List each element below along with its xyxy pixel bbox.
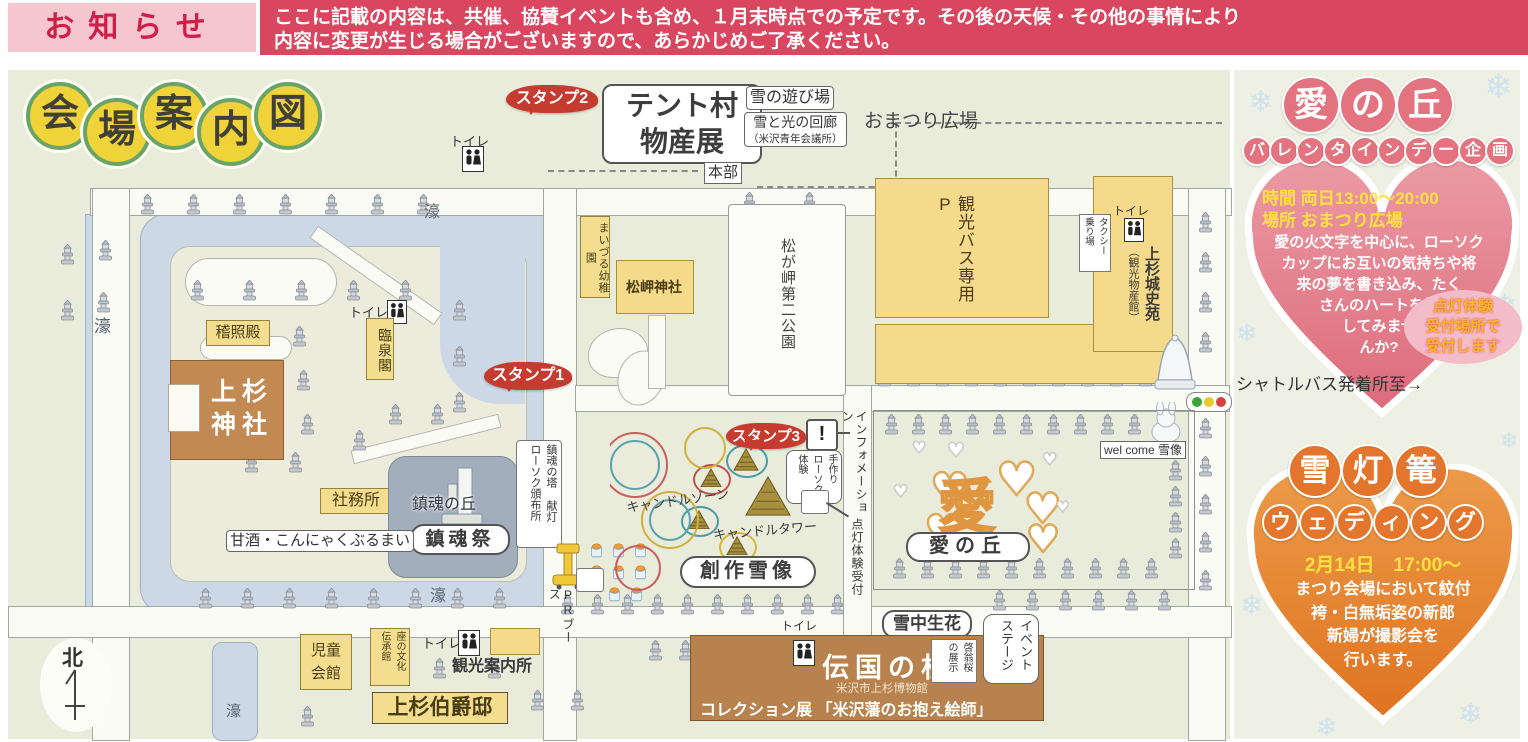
shamusho-label: 社務所 [320,488,392,514]
chinkon-hill-label: 鎮魂の丘 [412,490,476,514]
toilet-label: トイレ [1113,202,1149,219]
circle-char: タ [1323,136,1353,166]
pr-booth-box [576,568,604,592]
toilet-label: トイレ [781,617,817,634]
toilet-icon [1124,218,1144,242]
tent-line2: 物産展 [604,124,760,160]
information-label: インフォメーション [847,410,867,526]
snow-light-corridor-label: 雪と光の回廊 （米沢青年会議所） [744,112,847,147]
ai-place-label: 場所 おまつり広場 [1262,206,1403,231]
wedding-date-label: 2月14日 17:00～ [1258,550,1508,577]
circle-char: イ [1350,136,1380,166]
moat-south [212,642,258,741]
wedding-body-text: まつり会場において紋付 袴・白無垢姿の新郎 新婦が撮影会を 行います。 [1258,578,1508,672]
rinsenkaku-label: 臨泉閣 [366,318,394,380]
taxi-col2: 乗り場 [1081,217,1095,269]
chinkon-tower-col1: 鎮魂の塔 献灯 [543,444,559,544]
bus-parking-label: 観光バス専用P [950,195,974,311]
circle-char: 丘 [1396,76,1454,134]
lighting-badge-text: 点灯体験 受付場所で 受付します [1410,297,1516,357]
dashed-boundary [548,170,698,172]
tent-line1: テント村 [604,88,760,124]
za-col1: 座の文化 [392,631,407,683]
information-mark: ! [806,419,838,451]
snow-sculpture-label: 創作雪像 [680,556,816,588]
tent-village-label: テント村 物産展 [602,84,762,164]
circle-char: 雪 [1288,444,1342,498]
circle-char: グ [1447,504,1484,541]
notice-line2: 内容に変更が生じる場合がございますので、あらかじめご了承ください。 [274,30,1528,54]
hakushaku-label: 上杉伯爵邸 [372,692,508,724]
chinkon-tower-label: 鎮魂の塔 献灯 ローソク頒布所 [516,440,562,548]
stage-col1: イベント [1016,619,1035,679]
road-top [90,188,1232,216]
keio-col1: 啓翁桜 [959,642,974,680]
ai-no-oka-area [873,410,1195,590]
moat-label: 濠 [430,582,446,606]
ai-no-oka-label: 愛の丘 [906,532,1030,562]
welcome-statue-label: wel come 雪像 [1100,441,1186,459]
keio-sakura-label: 啓翁桜 の展示 [931,639,977,683]
circle-char: デ [1336,504,1373,541]
north-compass: 北 [40,638,112,732]
circle-char: 灯 [1341,444,1395,498]
stamp3-badge: スタンプ3 [726,423,806,449]
event-stage-label: イベント ステージ [983,614,1039,684]
kairo-line2: （米沢青年会議所） [748,132,843,146]
za-col2: 伝承館 [377,631,392,683]
park-label: 松が岬第二公園 [770,238,796,378]
circle-char: ィ [1373,504,1410,541]
shrine-name-line1: 上杉 [206,376,278,409]
circle-char: 企 [1458,136,1488,166]
jido-kaikan-label: 児童 会館 [300,634,352,690]
headquarters-label: 本部 [704,162,742,184]
collection-label: コレクション展 「米沢藩のお抱え絵師」 [700,696,992,720]
amazake-label: 甘酒・こんにゃくぶるまい [226,530,414,552]
big-snow-lantern-icon [1152,334,1198,396]
pr-booth-label: PRブース [556,588,574,650]
circle-char: ウ [1262,504,1299,541]
lighting-reception-label: 点灯体験受付 [843,518,863,610]
maizuru-kindergarten-label: まいづる幼稚園 [580,216,610,298]
road-bottom [8,606,1232,638]
moat-label: 濠 [94,312,111,337]
title-char: 図 [254,82,322,150]
tourist-info-building [490,628,540,655]
circle-char: レ [1269,136,1299,166]
snow-playground-label: 雪の遊び場 [746,86,834,110]
shuttle-bus-label: シャトルバス発着所至→ [1236,370,1423,395]
omatsuri-plaza-label: おまつり広場 [864,106,978,133]
notice-banner: ここに記載の内容は、共催、協賛イベントも含め、１月末時点での予定です。その後の天… [260,0,1528,55]
leader-line [836,432,850,434]
stamp1-badge: スタンプ1 [484,362,572,390]
shrine-name-line2: 神社 [206,409,278,442]
reception-box [801,490,829,514]
shrine-notch [168,384,200,432]
stage-col2: ステージ [997,619,1016,679]
denkoku-sublabel: 米沢市上杉博物館 [836,680,928,696]
uesugi-shrine-label: 上杉 神社 [206,376,278,441]
circle-char: ン [1410,504,1447,541]
notice-label: お知らせ [8,3,256,52]
circle-char: ン [1377,136,1407,166]
island-path [185,258,337,306]
toilet-label: トイレ [422,633,461,652]
shrine-approach [648,315,666,389]
chinkon-festival-label: 鎮魂祭 [410,524,510,555]
keishoden-label: 稽照殿 [206,320,270,346]
circle-char: デ [1404,136,1434,166]
matsugasaki-shrine-label: 松岬神社 [620,277,688,297]
page-title: 会場案内図 [26,82,326,166]
traffic-light-icon [1186,392,1232,412]
tourist-info-label: 観光案内所 [452,652,532,676]
circle-char: の [1339,76,1397,134]
circle-char: ー [1431,136,1461,166]
circle-char: バ [1242,136,1272,166]
toilet-icon [462,146,484,172]
kairo-line1: 雪と光の回廊 [748,113,843,132]
keio-col2: の展示 [944,642,959,680]
circle-char: 画 [1485,136,1515,166]
moat-label: 濠 [424,198,440,222]
notice-line1: ここに記載の内容は、共催、協賛イベントも含め、１月末時点での予定です。その後の天… [274,6,1528,30]
za-bunka-label: 座の文化 伝承館 [370,628,410,686]
toilet-icon [793,640,815,666]
joshien-col2: （観光物産館） [1125,246,1141,376]
moat-label: 濠 [226,700,241,721]
road-shuttle [575,385,1230,412]
circle-char: 愛 [1282,76,1340,134]
snow-flower-label: 雪中生花 [882,610,972,638]
circle-char: ン [1296,136,1326,166]
circle-char: 篭 [1394,444,1448,498]
chinkon-tower-col2: ローソク頒布所 [527,444,543,544]
circle-char: ェ [1299,504,1336,541]
stamp2-badge: スタンプ2 [506,85,598,113]
